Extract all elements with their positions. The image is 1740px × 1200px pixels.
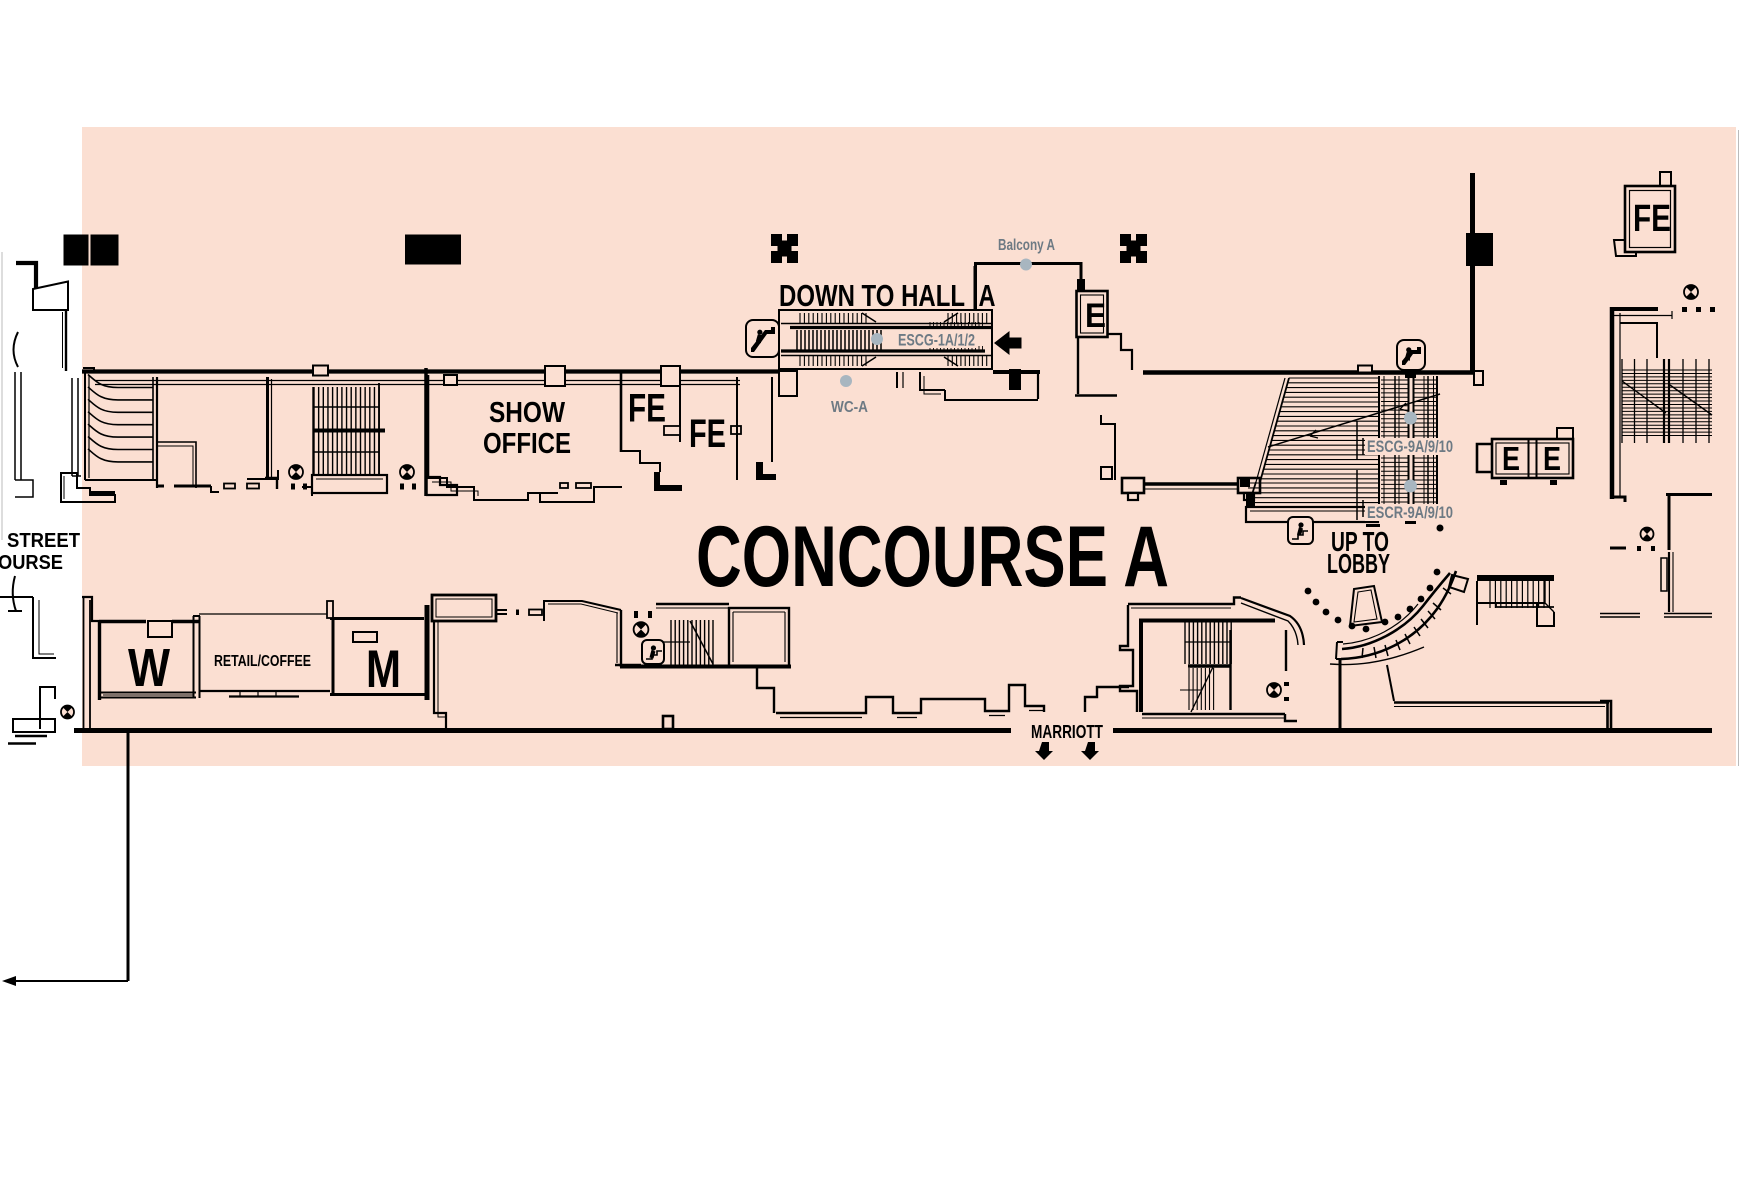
svg-text:A: A: [979, 278, 996, 313]
svg-text:WC-A: WC-A: [831, 399, 868, 416]
svg-text:SHOW: SHOW: [489, 397, 566, 429]
svg-text:MARRIOTT: MARRIOTT: [1031, 721, 1104, 742]
svg-text:STREET: STREET: [7, 529, 80, 552]
svg-text:Balcony A: Balcony A: [998, 237, 1055, 254]
svg-text:M: M: [366, 640, 401, 699]
svg-text:FE: FE: [628, 387, 666, 431]
svg-text:RETAIL/COFFEE: RETAIL/COFFEE: [214, 653, 311, 670]
svg-text:LOBBY: LOBBY: [1327, 548, 1390, 579]
svg-text:DOWN TO HALL: DOWN TO HALL: [779, 278, 965, 313]
svg-text:ESCG-1A/1/2: ESCG-1A/1/2: [898, 332, 975, 350]
svg-text:FE: FE: [689, 412, 726, 456]
svg-text:CONCOURSE A: CONCOURSE A: [696, 509, 1169, 605]
svg-text:ESCG-9A/9/10: ESCG-9A/9/10: [1367, 438, 1453, 456]
svg-text:OFFICE: OFFICE: [483, 428, 571, 460]
svg-text:OURSE: OURSE: [0, 551, 63, 574]
svg-text:W: W: [128, 638, 170, 698]
svg-text:ESCR-9A/9/10: ESCR-9A/9/10: [1367, 504, 1453, 522]
svg-text:E: E: [1543, 440, 1561, 477]
svg-text:FE: FE: [1633, 198, 1671, 240]
svg-text:E: E: [1085, 297, 1106, 335]
svg-text:E: E: [1502, 440, 1520, 477]
